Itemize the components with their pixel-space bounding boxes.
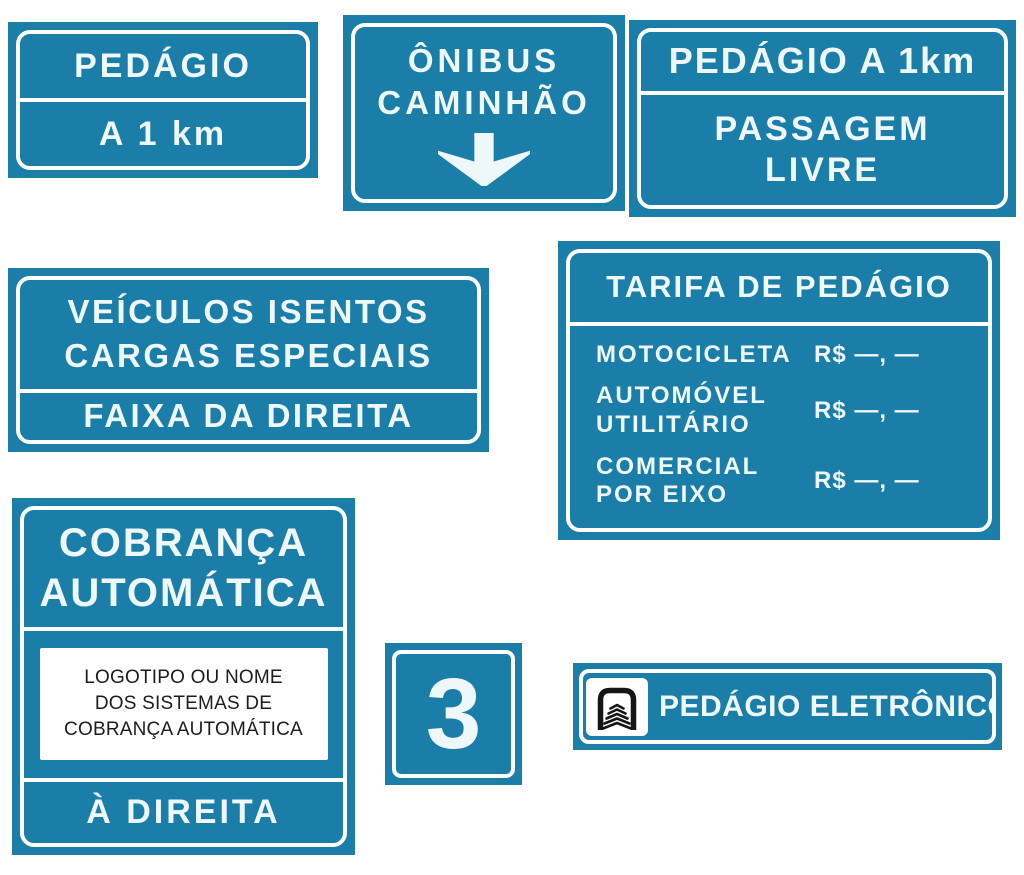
- sign-section-logo: LOGOTIPO OU NOME DOS SISTEMAS DE COBRANÇ…: [24, 627, 343, 779]
- logo-placeholder-box: LOGOTIPO OU NOME DOS SISTEMAS DE COBRANÇ…: [40, 648, 328, 760]
- tariff-label-line: AUTOMÓVEL: [596, 382, 767, 410]
- passagem-text: PASSAGEM: [714, 109, 930, 150]
- a-direita-text: À DIREITA: [86, 793, 280, 832]
- tariff-row-automovel: AUTOMÓVEL UTILITÁRIO R$ —, —: [596, 382, 964, 439]
- onibus-text: ÔNIBUS: [408, 40, 560, 82]
- sign-section-bottom: À DIREITA: [24, 778, 343, 843]
- sign-onibus-caminhao: ÔNIBUS CAMINHÃO: [343, 15, 625, 211]
- sign-section-bottom: PASSAGEM LIVRE: [641, 91, 1004, 205]
- toll-gantry-icon: [586, 678, 648, 736]
- tariff-label-line: POR EIXO: [596, 481, 759, 509]
- sign-panel: 3: [392, 650, 515, 778]
- sign-section-title: COBRANÇA AUTOMÁTICA: [24, 510, 343, 627]
- sign-section: ÔNIBUS CAMINHÃO: [355, 27, 613, 199]
- sign-pedagio-eletronico: PEDÁGIO ELETRÔNICO: [573, 663, 1002, 750]
- tariff-label-line: COMERCIAL: [596, 453, 759, 481]
- tariff-table: MOTOCICLETA R$ —, — AUTOMÓVEL UTILITÁRIO…: [570, 322, 988, 528]
- sign-veiculos-isentos: VEÍCULOS ISENTOS CARGAS ESPECIAIS FAIXA …: [8, 268, 489, 452]
- sign-panel: COBRANÇA AUTOMÁTICA LOGOTIPO OU NOME DOS…: [20, 506, 347, 847]
- toll-sign-sheet: PEDÁGIO A 1 km ÔNIBUS CAMINHÃO PEDÁGIO A…: [0, 0, 1024, 875]
- tariff-title: TARIFA DE PEDÁGIO: [570, 253, 988, 322]
- veiculos-isentos-text: VEÍCULOS ISENTOS: [67, 290, 429, 334]
- pedagio-text: PEDÁGIO: [74, 47, 252, 86]
- faixa-direita-text: FAIXA DA DIREITA: [83, 397, 413, 435]
- sign-panel: PEDÁGIO A 1 km: [16, 30, 310, 170]
- logo-placeholder-line: LOGOTIPO OU NOME: [84, 665, 283, 691]
- tariff-title-text: TARIFA DE PEDÁGIO: [606, 269, 952, 305]
- sign-section-bottom: FAIXA DA DIREITA: [20, 389, 477, 440]
- livre-text: LIVRE: [765, 150, 880, 191]
- tariff-row-comercial: COMERCIAL POR EIXO R$ —, —: [596, 453, 964, 510]
- tariff-label-line: MOTOCICLETA: [596, 341, 792, 369]
- sign-cobranca-automatica: COBRANÇA AUTOMÁTICA LOGOTIPO OU NOME DOS…: [12, 498, 355, 855]
- cobranca-text: COBRANÇA: [59, 518, 308, 568]
- sign-section-top: PEDÁGIO A 1km: [641, 32, 1004, 91]
- logo-placeholder-line: COBRANÇA AUTOMÁTICA: [64, 717, 303, 743]
- logo-placeholder-line: DOS SISTEMAS DE: [95, 691, 272, 717]
- lane-number-text: 3: [426, 664, 482, 764]
- sign-section-top: PEDÁGIO: [20, 34, 306, 98]
- tariff-price-value: R$ —, —: [814, 341, 964, 369]
- sign-panel: ÔNIBUS CAMINHÃO: [351, 23, 617, 203]
- sign-section: 3: [396, 654, 511, 774]
- sign-tarifa-de-pedagio: TARIFA DE PEDÁGIO MOTOCICLETA R$ —, — AU…: [558, 241, 1000, 540]
- toll-gantry-glyph: [591, 682, 643, 732]
- down-arrow-icon: [438, 133, 530, 186]
- cargas-especiais-text: CARGAS ESPECIAIS: [64, 334, 432, 378]
- pedagio-eletronico-text: PEDÁGIO ELETRÔNICO: [659, 690, 996, 724]
- sign-lane-number-3: 3: [385, 643, 522, 785]
- tariff-row-motocicleta: MOTOCICLETA R$ —, —: [596, 341, 964, 369]
- tariff-price-value: R$ —, —: [814, 467, 964, 495]
- tariff-price-value: R$ —, —: [814, 397, 964, 425]
- pedagio-a-1km-text: PEDÁGIO A 1km: [669, 40, 976, 82]
- tariff-vehicle-label: COMERCIAL POR EIXO: [596, 453, 759, 510]
- sign-panel: VEÍCULOS ISENTOS CARGAS ESPECIAIS FAIXA …: [16, 276, 481, 444]
- sign-pedagio-distance: PEDÁGIO A 1 km: [8, 22, 318, 178]
- distance-text: A 1 km: [99, 115, 227, 154]
- sign-panel: PEDÁGIO ELETRÔNICO: [579, 669, 996, 744]
- tariff-vehicle-label: MOTOCICLETA: [596, 341, 792, 369]
- tariff-label-line: UTILITÁRIO: [596, 411, 767, 439]
- caminhao-text: CAMINHÃO: [377, 82, 590, 124]
- sign-pedagio-a-1km-passagem-livre: PEDÁGIO A 1km PASSAGEM LIVRE: [629, 20, 1016, 217]
- automatica-text: AUTOMÁTICA: [39, 568, 327, 618]
- sign-panel: PEDÁGIO A 1km PASSAGEM LIVRE: [637, 28, 1008, 209]
- tariff-vehicle-label: AUTOMÓVEL UTILITÁRIO: [596, 382, 767, 439]
- sign-section-top: VEÍCULOS ISENTOS CARGAS ESPECIAIS: [20, 280, 477, 389]
- sign-section-bottom: A 1 km: [20, 98, 306, 166]
- sign-panel: TARIFA DE PEDÁGIO MOTOCICLETA R$ —, — AU…: [566, 249, 992, 532]
